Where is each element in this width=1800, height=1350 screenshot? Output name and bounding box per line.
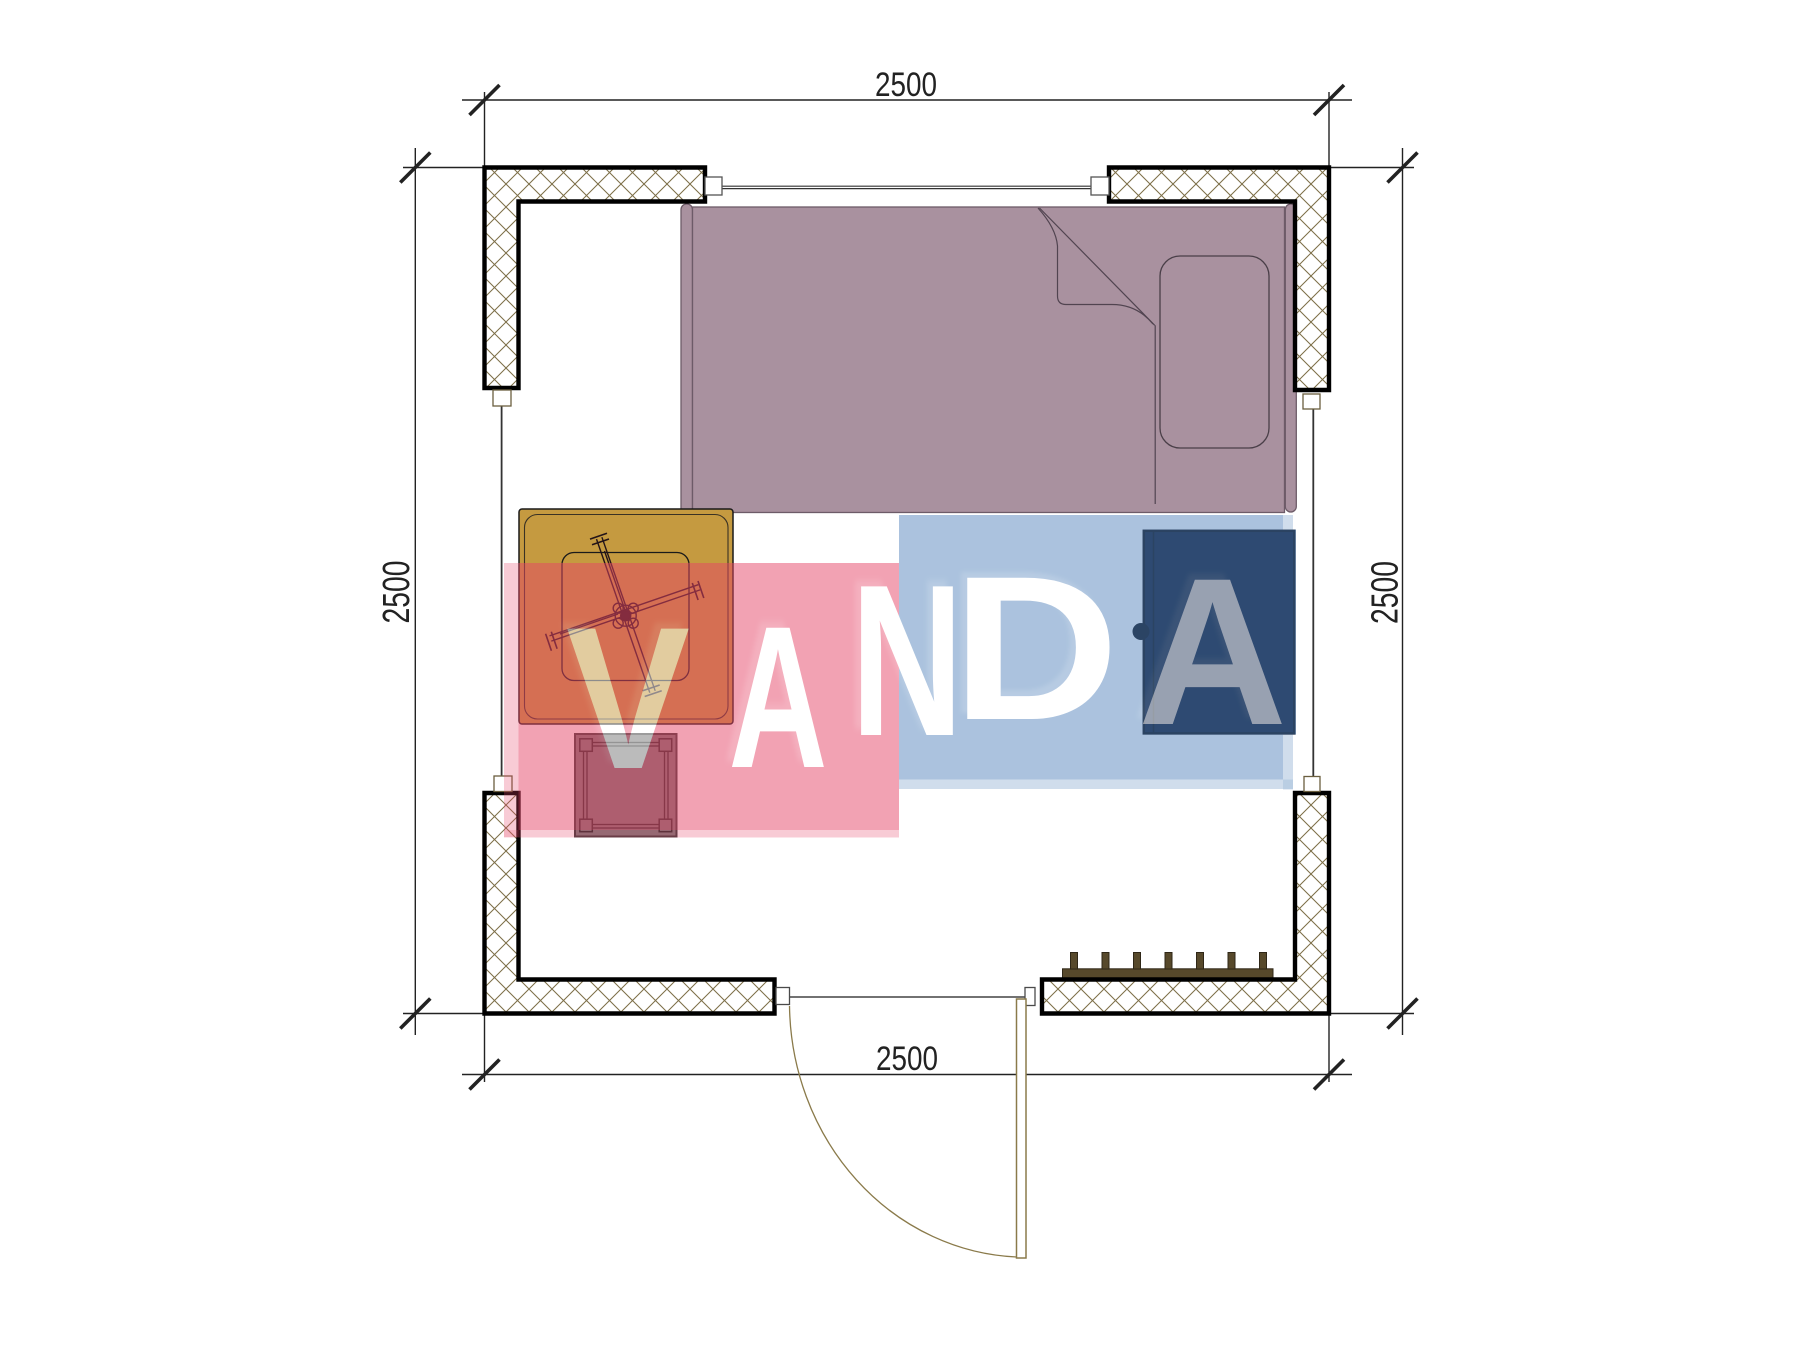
svg-text:D: D (952, 534, 1120, 763)
svg-text:2500: 2500 (376, 561, 418, 624)
svg-text:A: A (1138, 535, 1287, 769)
svg-text:2500: 2500 (875, 66, 937, 104)
svg-text:2500: 2500 (876, 1040, 938, 1078)
svg-text:A: A (729, 584, 828, 810)
svg-text:2500: 2500 (1365, 561, 1407, 624)
svg-text:V: V (566, 586, 690, 812)
